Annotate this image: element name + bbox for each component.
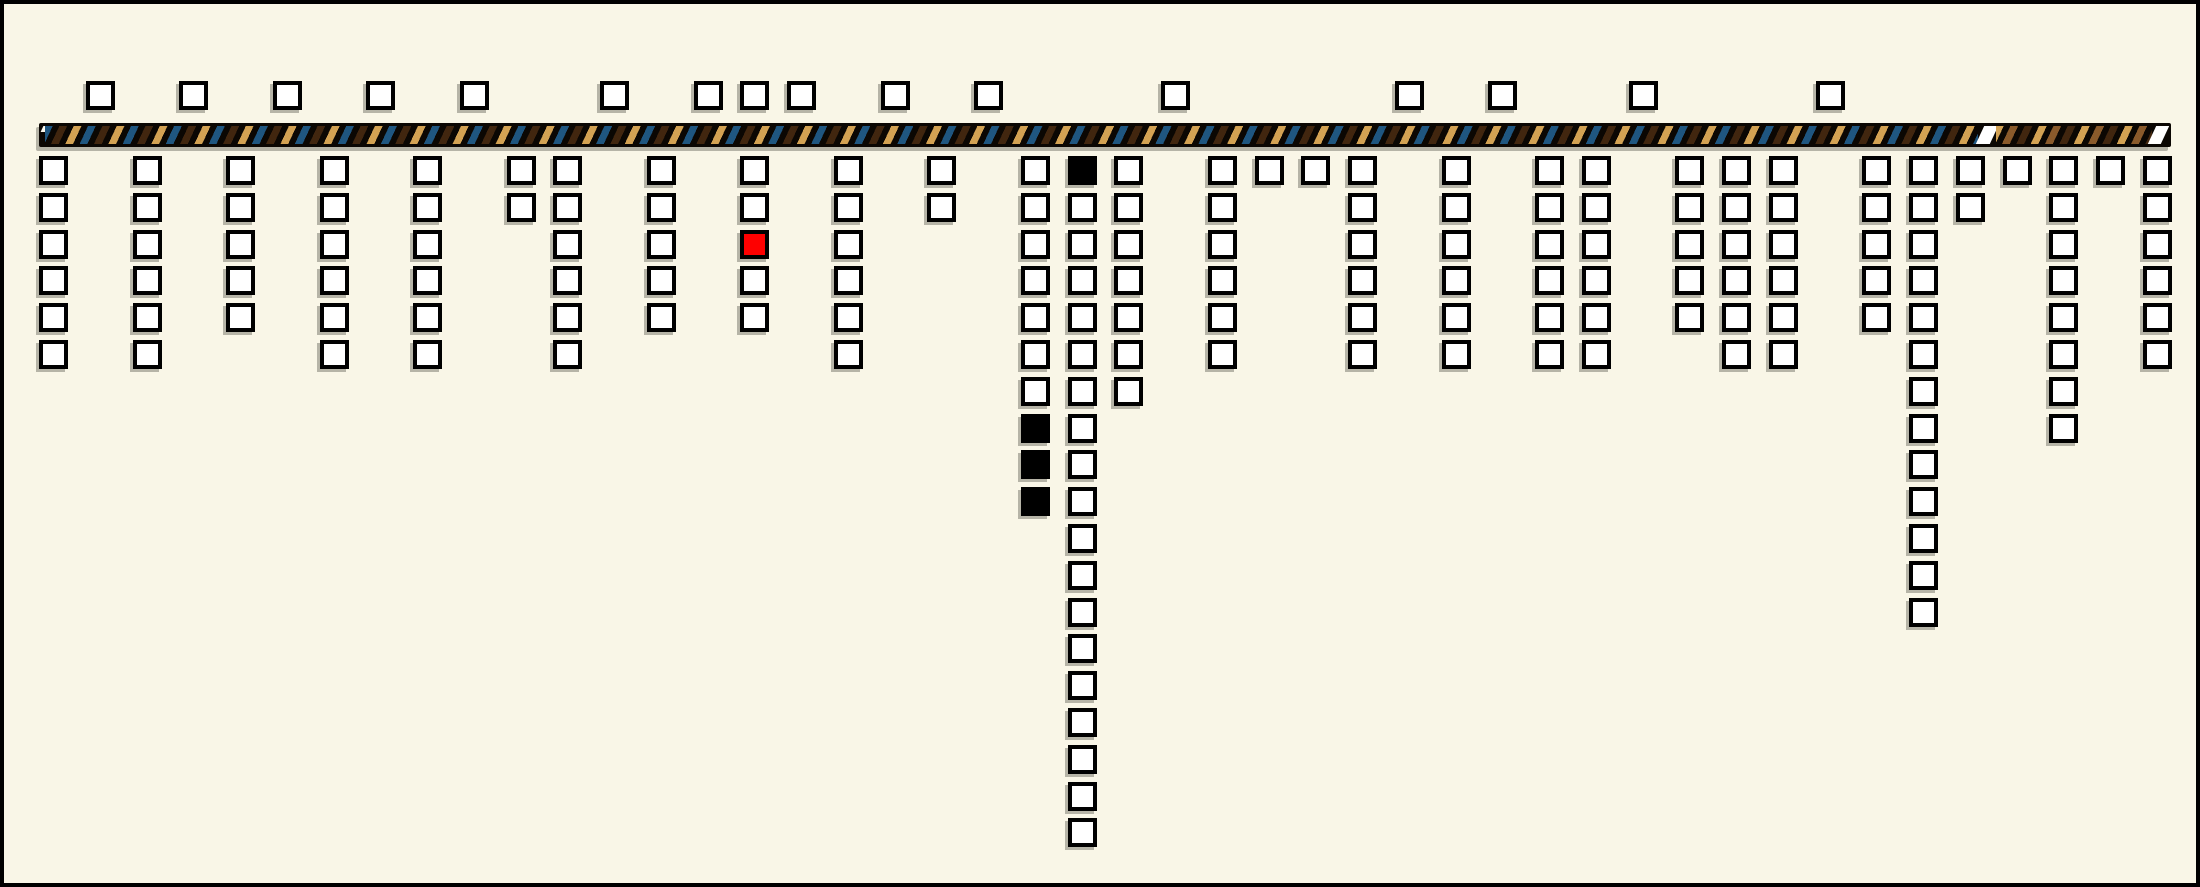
unit-square <box>1068 745 1097 774</box>
unit-square <box>1909 598 1938 627</box>
unit-square <box>1208 266 1237 295</box>
unit-square <box>1582 266 1611 295</box>
unit-square <box>1021 303 1050 332</box>
unit-square <box>133 156 162 185</box>
unit-square <box>1675 230 1704 259</box>
unit-square <box>1021 193 1050 222</box>
unit-square <box>1582 303 1611 332</box>
unit-square <box>1722 303 1751 332</box>
unit-square <box>1862 303 1891 332</box>
unit-square <box>647 156 676 185</box>
unit-square <box>1535 193 1564 222</box>
unit-square <box>553 156 582 185</box>
unit-square <box>1348 156 1377 185</box>
unit-square <box>881 81 910 110</box>
unit-square <box>553 230 582 259</box>
unit-square <box>740 156 769 185</box>
unit-square <box>1909 524 1938 553</box>
unit-square <box>1769 266 1798 295</box>
unit-square <box>1068 450 1097 479</box>
unit-square <box>1956 156 1985 185</box>
unit-square <box>1021 156 1050 185</box>
unit-square <box>834 303 863 332</box>
unit-square <box>1348 340 1377 369</box>
unit-square <box>1862 266 1891 295</box>
unit-square <box>1348 230 1377 259</box>
unit-square <box>647 230 676 259</box>
unit-square <box>553 303 582 332</box>
unit-square <box>1114 377 1143 406</box>
unit-square <box>1862 156 1891 185</box>
unit-square <box>2143 193 2172 222</box>
unit-square <box>1114 340 1143 369</box>
unit-square <box>1442 303 1471 332</box>
unit-square <box>1535 230 1564 259</box>
unit-square <box>553 340 582 369</box>
unit-square <box>1348 266 1377 295</box>
unit-square <box>507 193 536 222</box>
unit-square <box>2143 340 2172 369</box>
unit-square <box>1255 156 1284 185</box>
unit-square <box>133 193 162 222</box>
unit-square <box>1816 81 1845 110</box>
unit-square <box>1909 377 1938 406</box>
unit-square <box>1442 193 1471 222</box>
unit-square <box>834 156 863 185</box>
unit-square <box>1722 340 1751 369</box>
unit-square <box>39 156 68 185</box>
unit-square <box>39 266 68 295</box>
unit-square <box>1021 230 1050 259</box>
unit-square <box>2143 230 2172 259</box>
unit-square <box>1068 377 1097 406</box>
unit-square <box>226 193 255 222</box>
unit-square <box>1068 414 1097 443</box>
unit-square <box>39 303 68 332</box>
unit-square <box>1862 193 1891 222</box>
unit-square <box>647 303 676 332</box>
unit-square <box>413 156 442 185</box>
unit-square <box>366 81 395 110</box>
unit-square <box>1068 671 1097 700</box>
unit-square <box>1068 782 1097 811</box>
unit-square <box>2049 156 2078 185</box>
unit-square <box>1208 303 1237 332</box>
unit-square-red <box>740 230 769 259</box>
unit-square <box>1722 266 1751 295</box>
unit-square <box>1114 193 1143 222</box>
unit-square <box>553 266 582 295</box>
unit-square <box>1675 193 1704 222</box>
unit-square <box>1161 81 1190 110</box>
unit-square <box>1114 266 1143 295</box>
unit-square <box>1068 524 1097 553</box>
unit-square <box>1769 303 1798 332</box>
unit-square <box>1535 266 1564 295</box>
unit-square <box>1068 340 1097 369</box>
unit-square <box>1068 561 1097 590</box>
unit-square <box>1909 561 1938 590</box>
unit-square <box>86 81 115 110</box>
unit-square <box>974 81 1003 110</box>
unit-square <box>1956 193 1985 222</box>
bar-stripes-left <box>45 126 1978 144</box>
unit-square <box>834 230 863 259</box>
unit-square <box>413 340 442 369</box>
unit-square <box>320 340 349 369</box>
unit-square <box>2143 156 2172 185</box>
unit-square <box>834 340 863 369</box>
timeline-bar <box>39 123 2171 147</box>
unit-square <box>1068 818 1097 847</box>
unit-square <box>320 303 349 332</box>
unit-square <box>1722 156 1751 185</box>
unit-square <box>413 303 442 332</box>
unit-square <box>2049 303 2078 332</box>
unit-square <box>320 230 349 259</box>
unit-square <box>460 81 489 110</box>
unit-square <box>1582 230 1611 259</box>
unit-square <box>740 303 769 332</box>
unit-square <box>2143 266 2172 295</box>
unit-square <box>2049 193 2078 222</box>
unit-square <box>1442 156 1471 185</box>
unit-square-black <box>1021 414 1050 443</box>
unit-square <box>1068 634 1097 663</box>
unit-square <box>1582 193 1611 222</box>
unit-square <box>740 266 769 295</box>
unit-square <box>1442 230 1471 259</box>
unit-square <box>226 266 255 295</box>
unit-square <box>1769 230 1798 259</box>
unit-square <box>1442 266 1471 295</box>
unit-square <box>1675 303 1704 332</box>
unit-square <box>1208 193 1237 222</box>
unit-square <box>1535 303 1564 332</box>
unit-square <box>1114 230 1143 259</box>
unit-square <box>1068 230 1097 259</box>
unit-square <box>1909 340 1938 369</box>
unit-square <box>1909 230 1938 259</box>
unit-square <box>1021 340 1050 369</box>
unit-square <box>1068 193 1097 222</box>
unit-square <box>1909 266 1938 295</box>
bar-stripes-right <box>1996 126 2152 144</box>
unit-square <box>1021 266 1050 295</box>
unit-square <box>1722 230 1751 259</box>
unit-square <box>1769 156 1798 185</box>
unit-square <box>1909 414 1938 443</box>
unit-square <box>2049 266 2078 295</box>
unit-square <box>273 81 302 110</box>
unit-square <box>226 230 255 259</box>
unit-square <box>320 266 349 295</box>
unit-square <box>1675 266 1704 295</box>
unit-square <box>1675 156 1704 185</box>
unit-square <box>2096 156 2125 185</box>
unit-square <box>927 193 956 222</box>
unit-square <box>1909 487 1938 516</box>
unit-square <box>1068 303 1097 332</box>
unit-square <box>133 303 162 332</box>
unit-square <box>1021 377 1050 406</box>
unit-square <box>39 230 68 259</box>
unit-square <box>1301 156 1330 185</box>
unit-square <box>1722 193 1751 222</box>
unit-square <box>1769 340 1798 369</box>
unit-square <box>1909 193 1938 222</box>
unit-square <box>1629 81 1658 110</box>
unit-square <box>553 193 582 222</box>
unit-square <box>787 81 816 110</box>
unit-square <box>927 156 956 185</box>
unit-square <box>1488 81 1517 110</box>
unit-square <box>39 193 68 222</box>
unit-square <box>1582 156 1611 185</box>
unit-square <box>834 266 863 295</box>
unit-square <box>1535 156 1564 185</box>
unit-square <box>413 266 442 295</box>
unit-square <box>1395 81 1424 110</box>
unit-square <box>694 81 723 110</box>
unit-square <box>1909 450 1938 479</box>
unit-square <box>647 193 676 222</box>
unit-square-black <box>1021 450 1050 479</box>
unit-square <box>2049 340 2078 369</box>
unit-square <box>133 340 162 369</box>
unit-square <box>2049 377 2078 406</box>
unit-square <box>1769 193 1798 222</box>
unit-square <box>1208 156 1237 185</box>
unit-square <box>1348 193 1377 222</box>
unit-square <box>133 266 162 295</box>
unit-square <box>1068 487 1097 516</box>
unit-square <box>647 266 676 295</box>
unit-square <box>2049 414 2078 443</box>
unit-square <box>2049 230 2078 259</box>
unit-square <box>1442 340 1471 369</box>
unit-square <box>1348 303 1377 332</box>
unit-square <box>1068 708 1097 737</box>
pictograph-canvas <box>0 0 2200 887</box>
unit-square-black <box>1021 487 1050 516</box>
unit-square <box>320 193 349 222</box>
unit-square <box>2003 156 2032 185</box>
unit-square <box>1909 303 1938 332</box>
unit-square <box>600 81 629 110</box>
unit-square <box>834 193 863 222</box>
unit-square <box>226 156 255 185</box>
unit-square <box>1114 156 1143 185</box>
unit-square <box>1582 340 1611 369</box>
unit-square <box>1909 156 1938 185</box>
unit-square <box>1068 598 1097 627</box>
unit-square <box>133 230 162 259</box>
unit-square <box>1535 340 1564 369</box>
unit-square <box>179 81 208 110</box>
unit-square <box>740 81 769 110</box>
unit-square <box>740 193 769 222</box>
unit-square <box>320 156 349 185</box>
unit-square <box>1208 230 1237 259</box>
unit-square-black <box>1068 156 1097 185</box>
unit-square <box>226 303 255 332</box>
unit-square <box>39 340 68 369</box>
unit-square <box>413 230 442 259</box>
bar-white-break <box>1976 126 1998 144</box>
unit-square <box>1114 303 1143 332</box>
unit-square <box>507 156 536 185</box>
unit-square <box>1208 340 1237 369</box>
unit-square <box>1068 266 1097 295</box>
unit-square <box>2143 303 2172 332</box>
unit-square <box>1862 230 1891 259</box>
unit-square <box>413 193 442 222</box>
